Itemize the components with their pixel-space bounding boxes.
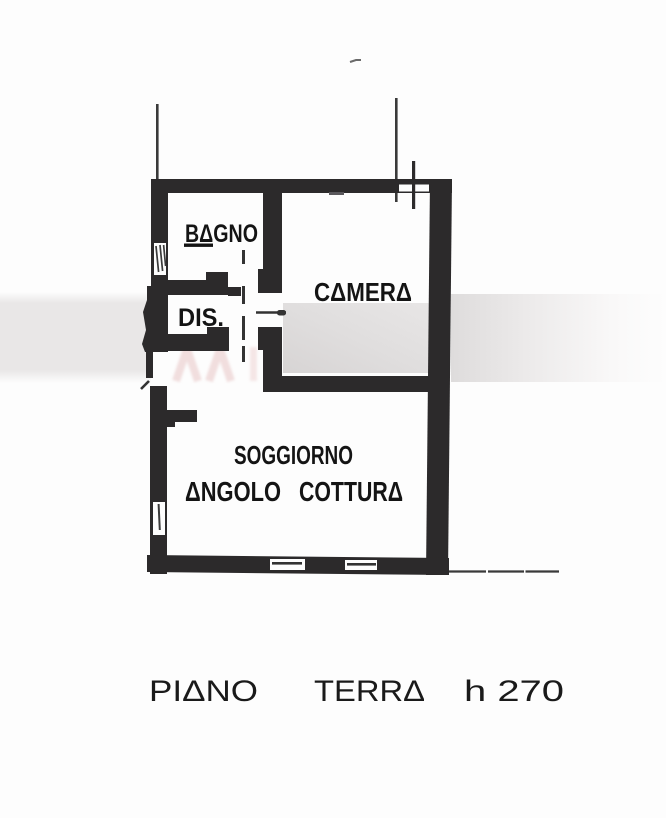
svg-text:SOGGIORNO: SOGGIORNO (234, 440, 353, 470)
svg-text:ΔNGOLO: ΔNGOLO (185, 476, 281, 507)
svg-text:PIΔNO: PIΔNO (149, 675, 258, 708)
svg-text:TERRΔ: TERRΔ (314, 675, 425, 708)
svg-text:COTTURΔ: COTTURΔ (299, 476, 403, 507)
svg-text:DIS.: DIS. (178, 304, 224, 332)
svg-text:CΔMERΔ: CΔMERΔ (314, 277, 412, 307)
svg-text:h 270: h 270 (464, 675, 564, 708)
